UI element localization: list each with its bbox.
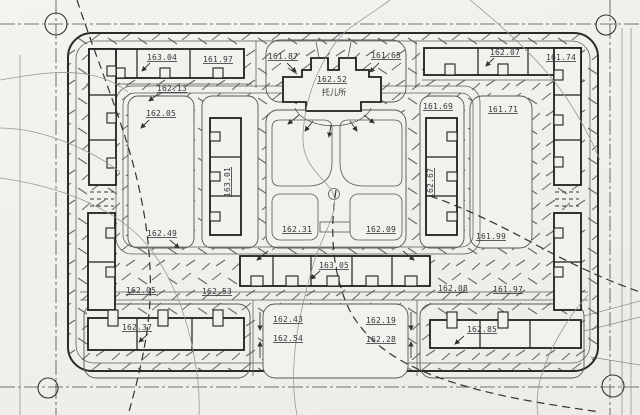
parcel-lawn-west <box>128 96 194 248</box>
parcel-lawn-east <box>470 96 532 248</box>
elevation-label: 162.13 <box>157 84 187 93</box>
elevation-label: 161.69 <box>423 102 453 111</box>
elevation-label: 162.67 <box>426 168 435 198</box>
elevation-label: 162.08 <box>438 284 468 293</box>
elevation-label: 162.31 <box>282 225 312 234</box>
elevation-label: 162.85 <box>467 325 497 334</box>
site-plan-drawing: 163.04 161.97 162.13 162.05 161.87 161.6… <box>0 0 640 415</box>
elevation-label: 161.97 <box>203 55 233 64</box>
elevation-label: 161.99 <box>476 232 506 241</box>
elevation-label: 162.07 <box>490 48 520 57</box>
elevation-label: 161.71 <box>488 105 518 114</box>
survey-marker-icon <box>38 378 58 398</box>
lawn-patch-ne <box>340 120 402 186</box>
planter-rect <box>320 222 350 232</box>
elevation-label: 163.04 <box>147 53 177 62</box>
survey-marker-icon <box>596 15 616 35</box>
elevation-label: 161.97 <box>493 285 523 294</box>
scanned-site-plan-sheet: 163.04 161.97 162.13 162.05 161.87 161.6… <box>0 0 640 415</box>
lawn-patch-nw <box>272 120 332 186</box>
elevation-label: 163.01 <box>223 167 232 197</box>
elevation-label: 161.65 <box>371 51 401 60</box>
survey-marker-icon <box>602 375 624 397</box>
elevation-label: 162.09 <box>366 225 396 234</box>
building-label-nursery: 托儿所 <box>322 87 347 97</box>
elevation-label: 162.43 <box>273 315 303 324</box>
elevation-label: 163.05 <box>319 261 349 270</box>
elevation-label: 162.52 <box>317 75 347 84</box>
elevation-label: 162.28 <box>366 335 396 344</box>
elevation-label: 162.05 <box>126 286 156 295</box>
elevation-label: 162.49 <box>147 229 177 238</box>
elevation-label: 162.54 <box>273 334 303 343</box>
elevation-label: 161.74 <box>546 53 576 62</box>
elevation-label: 162.53 <box>202 287 232 296</box>
elevation-label: 162.05 <box>146 109 176 118</box>
elevation-label: 162.19 <box>366 316 396 325</box>
elevation-label: 161.87 <box>268 52 298 61</box>
elevation-label: 162.37 <box>122 323 152 332</box>
